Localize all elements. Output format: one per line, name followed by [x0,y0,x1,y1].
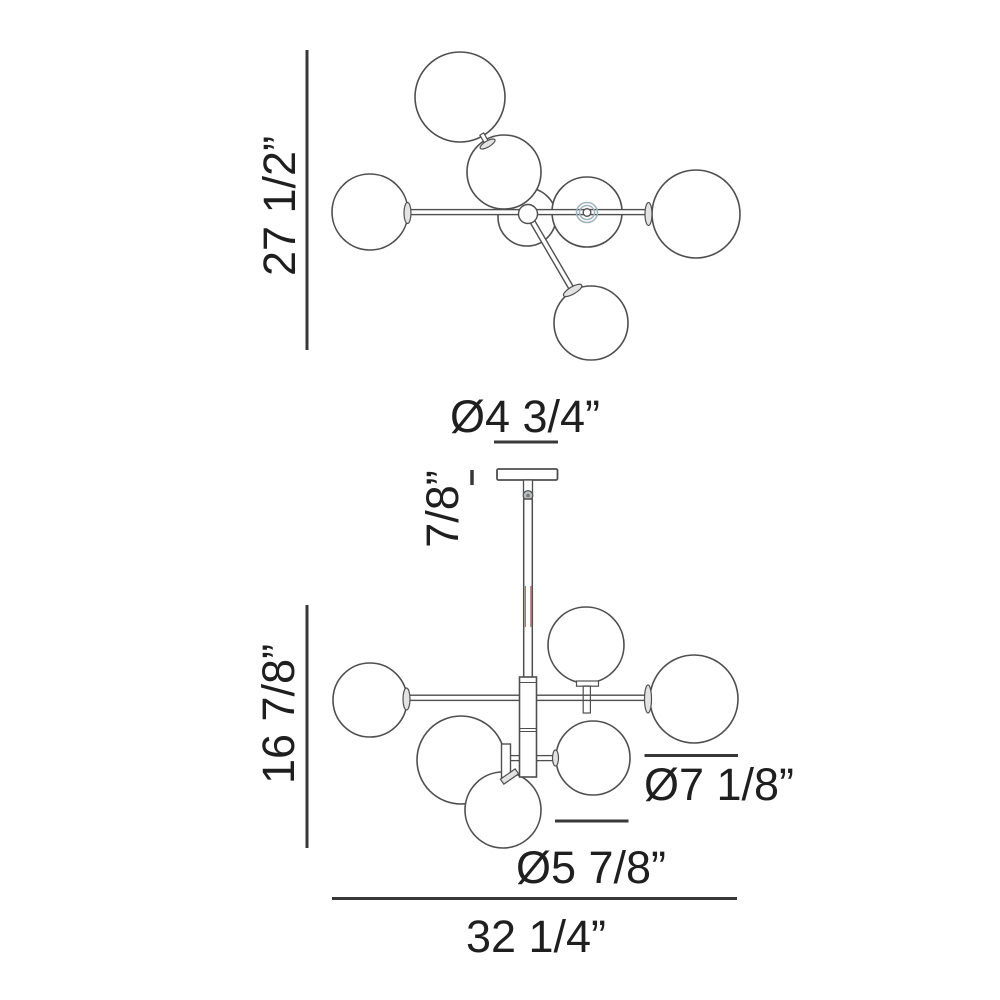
dim-label-small-globe-diameter: Ø5 7/8” [516,842,666,893]
canopy [497,469,558,480]
elev-lens-right [645,685,652,713]
dimension-diagram-page: 27 1/2” Ø4 3/4” 7/8” 16 7/8” Ø7 1/8” Ø5 … [0,0,1000,1000]
elev-globe-right [650,655,738,743]
plan-lens-right [645,203,652,226]
plan-stem-ring-inner [583,209,591,217]
plan-hub [519,205,538,224]
dim-label-large-globe-diameter: Ø7 1/8” [644,759,794,810]
plan-globe-right [652,170,740,258]
plan-globe-top [415,52,505,142]
dim-label-overall-width: 32 1/4” [466,911,606,962]
stem-knob-core [526,494,530,498]
dim-label-fixture-height: 16 7/8” [253,644,304,784]
plan-view [332,52,740,360]
elev-globe-left [333,663,407,737]
dim-label-canopy-height: 7/8” [417,470,468,548]
center-body [520,677,537,777]
plan-lens-left [404,203,411,224]
plan-globe-left [332,174,408,250]
chandelier-dimension-drawing: 27 1/2” Ø4 3/4” 7/8” 16 7/8” Ø7 1/8” Ø5 … [0,0,1000,1000]
dim-label-plan-height: 27 1/2” [254,136,305,276]
plan-globe-upper [467,135,541,209]
elev-globe-top-middle [548,607,624,683]
elev-globe-lower-middle [556,721,630,795]
dim-label-canopy-diameter: Ø4 3/4” [450,391,600,442]
elev-lens-left [403,688,410,710]
elev-lens-lower-middle [553,750,559,766]
